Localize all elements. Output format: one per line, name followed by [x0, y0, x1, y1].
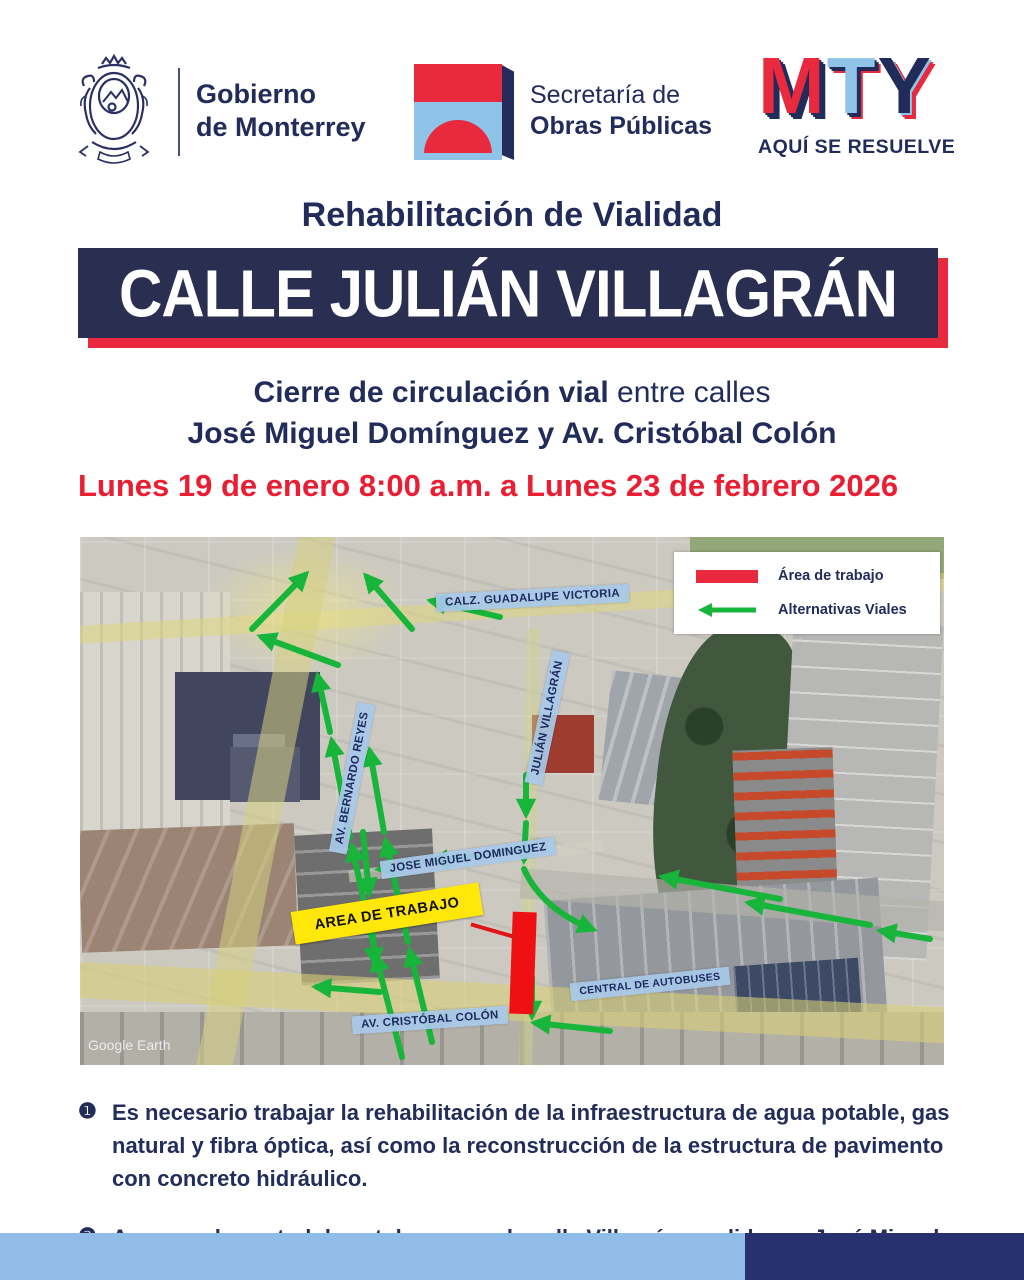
legend-alternatives-row: Alternativas Viales: [674, 598, 940, 622]
note-1-text: Es necesario trabajar la rehabilitación …: [112, 1096, 950, 1195]
street-banner: CALLE JULIÁN VILLAGRÁN: [78, 248, 938, 338]
header-divider: [178, 68, 180, 156]
mty-logo: MTY AQUÍ SE RESUELVE: [758, 46, 968, 159]
work-area-swatch-icon: [696, 570, 758, 583]
legend-alternatives-label: Alternativas Viales: [778, 602, 907, 618]
page-title: Rehabilitación de Vialidad: [0, 196, 1024, 235]
footer-bar-light: [0, 1233, 745, 1280]
date-range: Lunes 19 de enero 8:00 a.m. a Lunes 23 d…: [78, 468, 946, 504]
mty-letter-y: Y: [878, 41, 933, 130]
satellite-map: AREA DE TRABAJO CALZ. GUADALUPE VICTORIA…: [80, 537, 944, 1065]
note-1-bullet-icon: ❶: [78, 1096, 112, 1195]
obras-line1: Secretaría de: [530, 80, 712, 111]
obras-publicas-wordmark: Secretaría de Obras Públicas: [530, 80, 712, 143]
closure-line1-bold: Cierre de circulación vial: [254, 376, 609, 409]
obras-line2: Obras Públicas: [530, 111, 712, 142]
map-legend: Área de trabajo Alternativas Viales: [674, 552, 940, 634]
gobierno-line2: de Monterrey: [196, 111, 366, 144]
work-area-marker: [509, 912, 537, 1015]
header: Gobierno de Monterrey Secretaría de Obra…: [0, 40, 1024, 180]
legend-work-area-label: Área de trabajo: [778, 568, 884, 584]
closure-line1: Cierre de circulación vial entre calles: [0, 372, 1024, 413]
banner-street-name: CALLE JULIÁN VILLAGRÁN: [119, 254, 897, 331]
closure-line2: José Miguel Domínguez y Av. Cristóbal Co…: [0, 413, 1024, 454]
closure-line1-regular: entre calles: [609, 376, 771, 409]
note-item-1: ❶ Es necesario trabajar la rehabilitació…: [78, 1096, 950, 1195]
monterrey-coat-of-arms-icon: [62, 50, 166, 168]
green-arrow-icon: [696, 602, 758, 618]
mty-letters-icon: MTY: [758, 46, 968, 126]
legend-work-area-row: Área de trabajo: [674, 564, 940, 588]
mty-letter-t: T: [827, 41, 878, 130]
footer-bar-dark: [745, 1233, 1024, 1280]
mty-tagline: AQUÍ SE RESUELVE: [758, 136, 968, 159]
gobierno-monterrey-wordmark: Gobierno de Monterrey: [196, 78, 366, 144]
announcement-poster: Gobierno de Monterrey Secretaría de Obra…: [0, 0, 1024, 1280]
gobierno-line1: Gobierno: [196, 78, 366, 111]
mty-letter-m: M: [758, 41, 827, 130]
obras-publicas-logo-icon: [414, 64, 514, 160]
closure-subtitle: Cierre de circulación vial entre calles …: [0, 372, 1024, 455]
google-earth-watermark: Google Earth: [88, 1037, 171, 1053]
